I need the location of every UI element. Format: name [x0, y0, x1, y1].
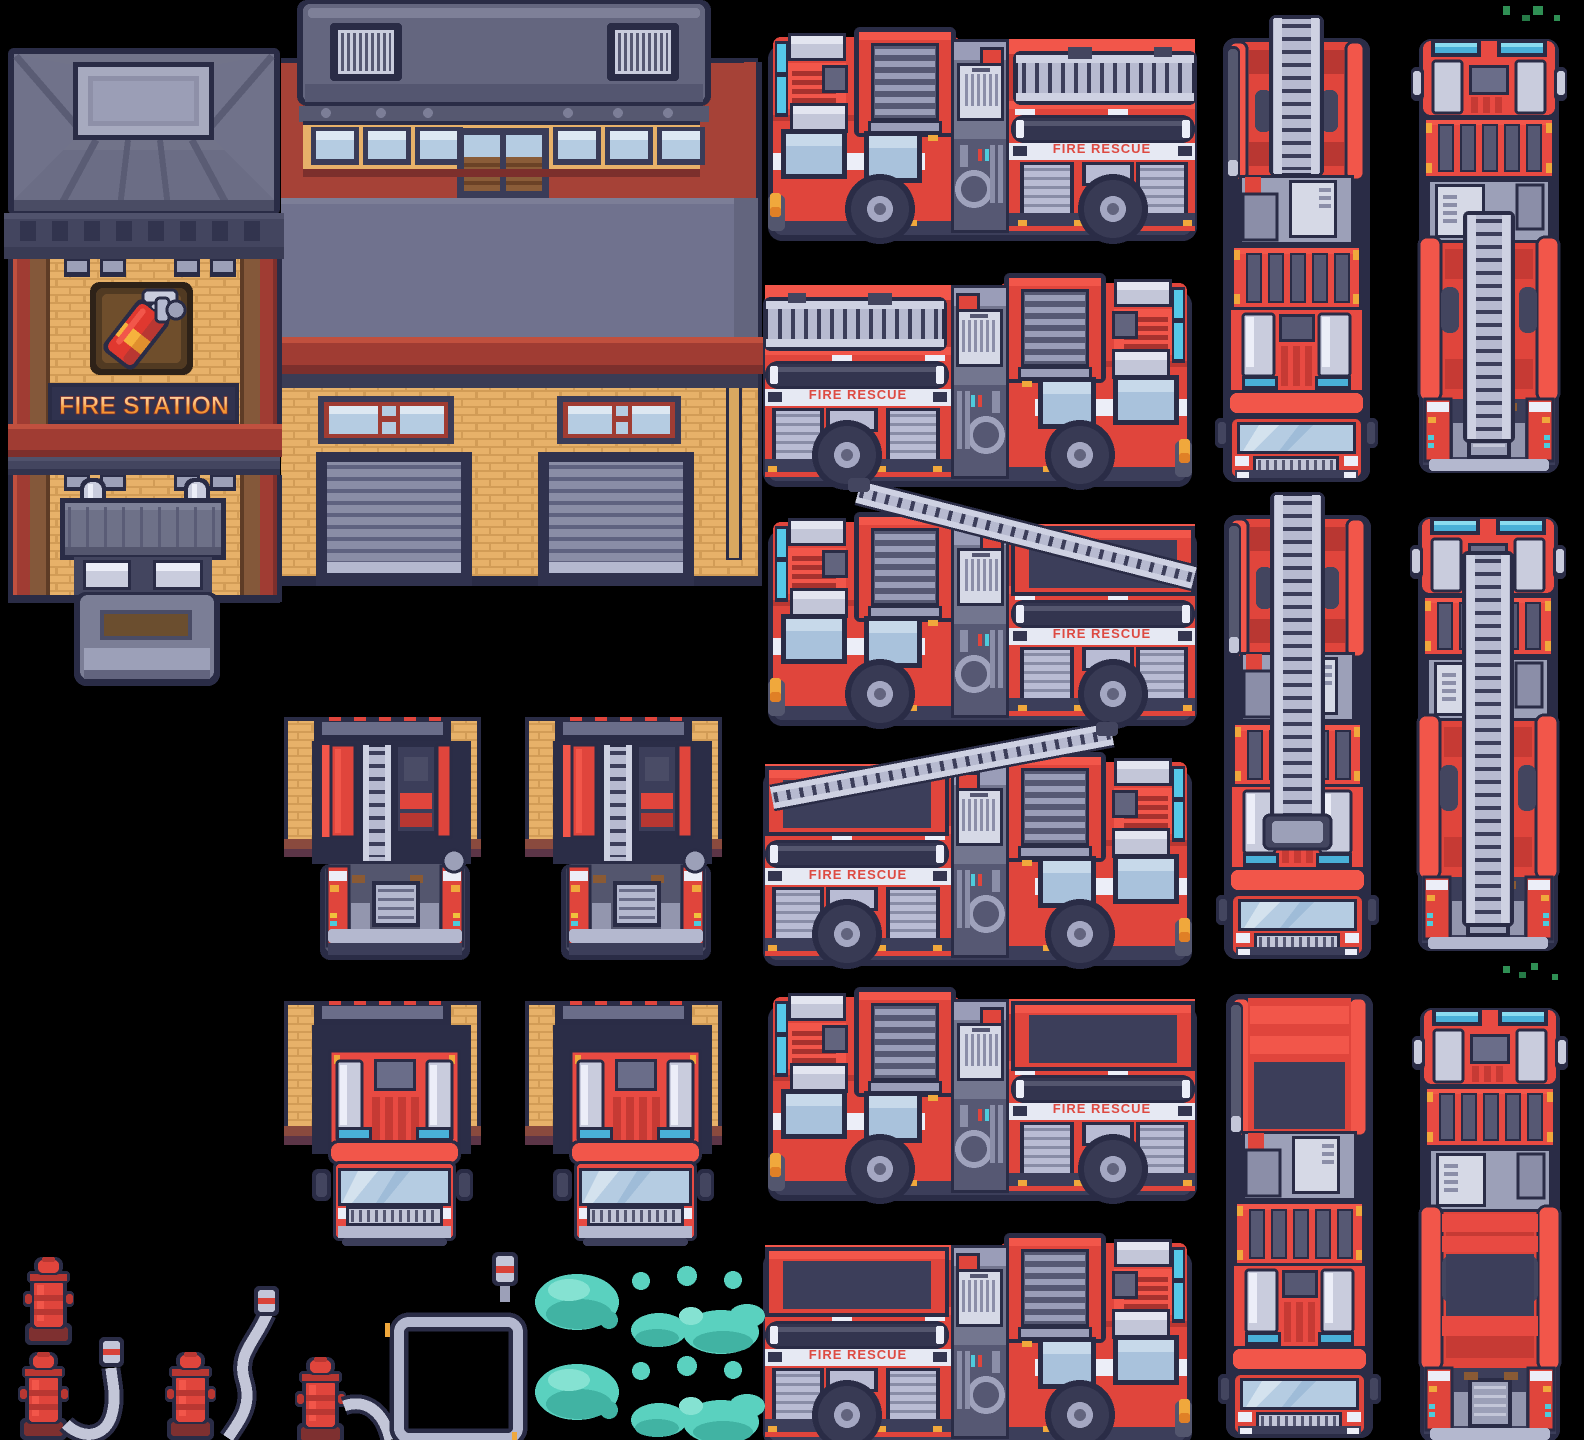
svg-text:FIRE RESCUE: FIRE RESCUE: [809, 387, 907, 402]
svg-text:FIRE RESCUE: FIRE RESCUE: [1053, 1101, 1151, 1116]
svg-text:FIRE RESCUE: FIRE RESCUE: [809, 1347, 907, 1362]
svg-text:FIRE STATION: FIRE STATION: [59, 392, 229, 420]
svg-text:FIRE RESCUE: FIRE RESCUE: [1053, 626, 1151, 641]
svg-text:FIRE RESCUE: FIRE RESCUE: [809, 867, 907, 882]
svg-text:FIRE RESCUE: FIRE RESCUE: [1053, 141, 1151, 156]
